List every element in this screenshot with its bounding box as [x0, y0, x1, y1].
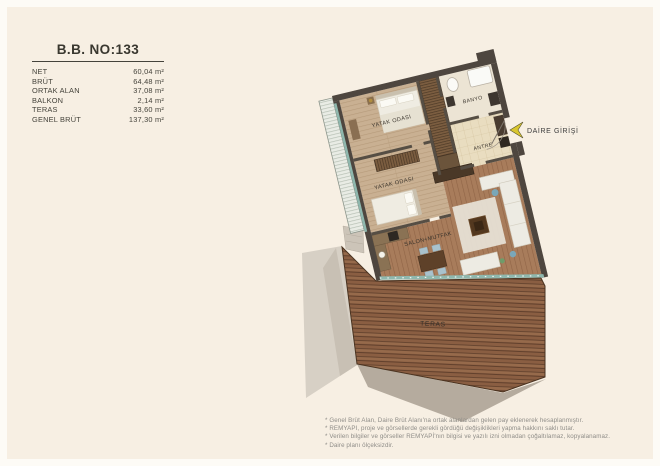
spec-row: NET 60,04 m² [32, 67, 164, 77]
spec-row: ORTAK ALAN 37,08 m² [32, 86, 164, 96]
footnote: * Daire planı ölçeksizdir. [325, 442, 645, 450]
spec-row: BRÜT 64,48 m² [32, 77, 164, 87]
spec-value: 37,08 m² [133, 86, 164, 96]
spec-label: BALKON [32, 96, 63, 106]
footnote: * REMYAPI, proje ve görsellerde gerekli … [325, 425, 645, 433]
floorplan-sheet: YATAK ODASI YATAK ODASI BANYO ANTRE SALO… [0, 0, 660, 466]
spec-label: ORTAK ALAN [32, 86, 80, 96]
spec-value: 33,60 m² [133, 105, 164, 115]
entrance-label: DAİRE GİRİŞİ [527, 126, 579, 135]
entrance-arrow-icon [510, 122, 523, 138]
spec-label: GENEL BRÜT [32, 115, 81, 125]
spec-row: GENEL BRÜT 137,30 m² [32, 115, 164, 125]
spec-label: TERAS [32, 105, 58, 115]
spec-label: NET [32, 67, 47, 77]
footnote: * Genel Brüt Alan, Daire Brüt Alanı'na o… [325, 417, 645, 425]
spec-row: BALKON 2,14 m² [32, 96, 164, 106]
spec-row: TERAS 33,60 m² [32, 105, 164, 115]
room-label-terrace: TERAS [420, 321, 446, 329]
unit-info: B.B. NO:133 NET 60,04 m² BRÜT 64,48 m² O… [32, 42, 164, 125]
spec-value: 2,14 m² [138, 96, 164, 106]
spec-value: 137,30 m² [129, 115, 164, 125]
unit-title: B.B. NO:133 [32, 42, 164, 57]
spec-value: 64,48 m² [133, 77, 164, 87]
footnote: * Verilen bilgiler ve görseller REMYAPİ'… [325, 433, 645, 441]
footnotes: * Genel Brüt Alan, Daire Brüt Alanı'na o… [325, 417, 645, 450]
title-underline [32, 61, 164, 62]
spec-label: BRÜT [32, 77, 53, 87]
spec-value: 60,04 m² [133, 67, 164, 77]
